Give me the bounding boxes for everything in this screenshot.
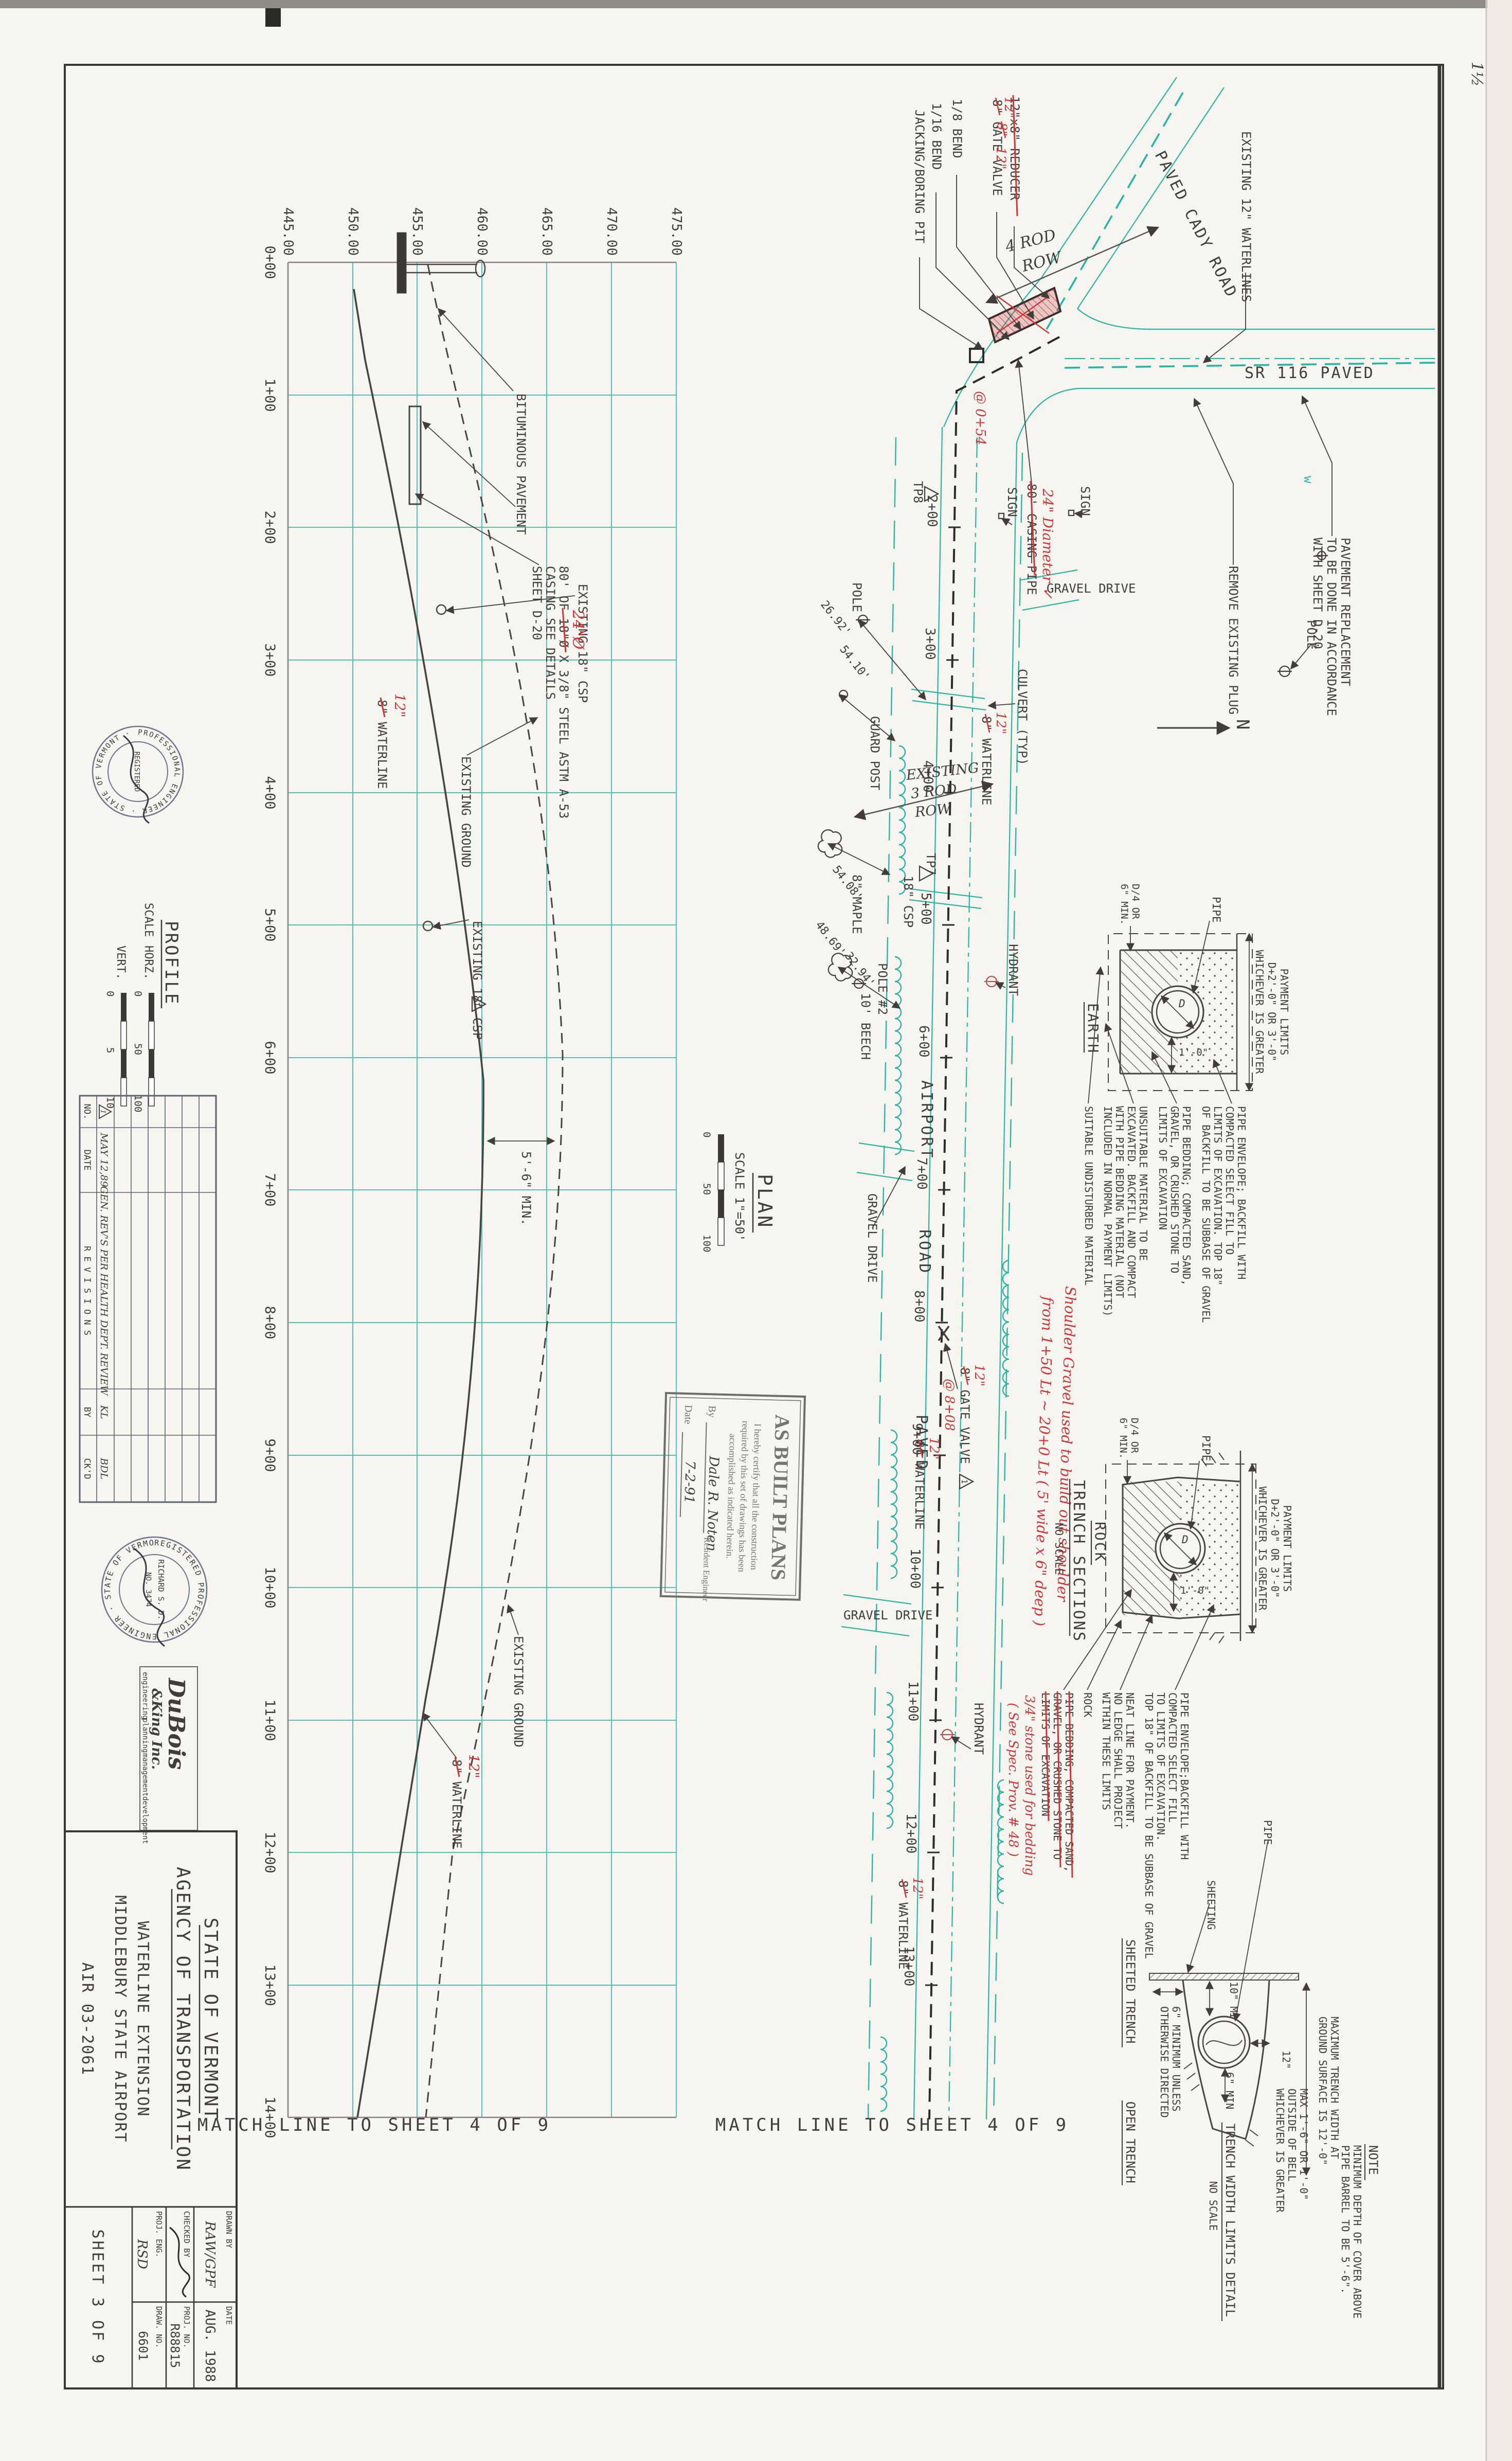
scale-tick: 100 — [132, 1095, 143, 1112]
max-bell-3: WHICHEVER IS GREATER — [1274, 2089, 1286, 2213]
asbuilt-line-1: I hereby certify that all the constructi… — [749, 1423, 763, 1570]
elevation-label: 470.00 — [604, 207, 619, 256]
rock-pipe-label: PIPE — [1200, 1435, 1212, 1461]
rock-d4-1: D/4 OR — [1129, 1418, 1140, 1453]
elevation-label: 445.00 — [280, 207, 296, 256]
gate-valve2-label: 8" GATE VALVE — [958, 1367, 972, 1464]
firm-logo-block: DuBois &King Inc. engineering planning m… — [140, 1667, 197, 1844]
existing-ground-label: EXISTING GROUND — [459, 756, 473, 868]
scale-tick: 0 — [701, 1132, 712, 1137]
earth-env-4: OF BACKFILL TO BE SUBBASE OF GRAVEL — [1200, 1106, 1212, 1323]
revision-number: 1 — [472, 1002, 481, 1006]
firm-service-4: development — [141, 1796, 149, 1844]
min-unless-2: OTHERWISE DIRECTED — [1158, 2006, 1171, 2118]
draw-no-label: DRAW. NO. — [154, 2306, 164, 2348]
min-cover-label: 5'-6" MIN. — [519, 1151, 533, 1226]
plan-title: PLAN — [753, 1174, 776, 1229]
revision-number: 1 — [960, 1479, 969, 1484]
vert-word: VERT. — [114, 946, 127, 979]
rock-dim-1ft: 1'-0" — [1180, 1585, 1210, 1596]
sign-label-b: SIGN — [1078, 486, 1092, 516]
earth-env-3: LIMITS OF EXCAVATION. TOP 18" — [1212, 1106, 1224, 1286]
rock-payment-2: D+2'-0" OR 3'-0" — [1269, 1499, 1281, 1598]
earth-env-1: PIPE ENVELOPE; BACKFILL WITH — [1235, 1106, 1248, 1279]
revision-row-1: 1 MAY 12,89 GEN. REV'S PER HEALTH DEPT. … — [98, 1105, 111, 1479]
rev-header-revisions: R E V I S I O N S — [82, 1246, 92, 1335]
waterline-label-c: 8" WATERLINE — [896, 1880, 910, 1969]
guard-post-label: GUARD POST — [868, 716, 882, 791]
red-gv2-at: @ 8+08 — [942, 1379, 957, 1431]
red-gv-at: @ 0+54 — [973, 391, 988, 445]
scale-tick: 100 — [701, 1235, 712, 1252]
dim-5410: 54.10' — [837, 643, 872, 683]
gravel-drive-label-b: GRAVEL DRIVE — [865, 1193, 879, 1282]
jacking-pit-label: JACKING/BORING PIT — [912, 110, 927, 243]
scale-tick: 5 — [104, 1047, 116, 1053]
profile-title: PROFILE — [161, 921, 182, 1005]
firm-service-1: engineering — [141, 1672, 149, 1720]
rev-row-date: MAY 12,89 — [98, 1132, 110, 1187]
bend-116-label: 1/16 BEND — [929, 103, 944, 170]
rock-d4-2: 6" MIN. — [1118, 1418, 1129, 1459]
rod3-row-2: 3 ROD — [910, 781, 958, 802]
profile-station: 8+00 — [262, 1306, 278, 1339]
title-project-2: MIDDLEBURY STATE AIRPORT — [111, 1895, 129, 2143]
casing-note-line1: 80' OF 18"Ø X 3/8" STEEL ASTM A-53 — [556, 566, 571, 818]
red-12-profile-1: 12" — [391, 693, 407, 718]
existing-csp-label-2: EXISTING 18" CSP — [470, 921, 484, 1040]
hydrant-label-b: HYDRANT — [971, 1703, 986, 1755]
match-line-left: MATCH LINE TO SHEET 4 OF 9 — [197, 2115, 551, 2135]
drawn-by-value: RAW/GPF — [202, 2220, 218, 2288]
sheeting-label: SHEETING — [1205, 1880, 1217, 1930]
earth-payment-2: D+2'-0" OR 3'-0" — [1266, 962, 1278, 1062]
match-line-right: MATCH LINE TO SHEET 4 OF 9 — [715, 2115, 1069, 2135]
earth-section: PAYMENT LIMITS D+2'-0" OR 3'-0" WHICHEVE… — [1083, 884, 1290, 1323]
csp18-label: 18" CSP — [901, 876, 915, 928]
bituminous-pavement-label: BITUMINOUS PAVEMENT — [514, 394, 528, 535]
remove-plug-label: REMOVE EXISTING PLUG — [1226, 566, 1240, 715]
earth-dim-d: D — [1178, 997, 1185, 1010]
profile-station: 0+00 — [262, 245, 278, 279]
asbuilt-date-label: Date — [682, 1405, 694, 1424]
registration-tab — [265, 8, 281, 27]
casing-crossing — [970, 288, 1060, 362]
rev-header-by: BY — [82, 1407, 92, 1417]
horz-word: HORZ. — [142, 946, 155, 979]
earth-unsuit-4: INCLUDED IN NORMAL PAYMENT LIMITS) — [1102, 1106, 1114, 1316]
earth-unsuit-2: EXCAVATED. BACKFILL AND COMPACT — [1125, 1106, 1138, 1298]
trench-width-labels: SHEETED TRENCH OPEN TRENCH SHEETING PIPE… — [1122, 1820, 1380, 2321]
drawing-canvas: 1½ 0+00 1+00 2+00 3+00 4+00 5+00 6+00 7+… — [0, 0, 1512, 2461]
date-label: DATE — [224, 2306, 233, 2325]
rock-env-2: COMPACTED SELECT FILL — [1166, 1692, 1179, 1823]
sr116-label: SR 116 PAVED — [1245, 364, 1375, 382]
cady-road-label: PAVED CADY ROAD — [1151, 148, 1241, 301]
waterline-label-b: 8" WATERLINE — [912, 1440, 927, 1529]
profile-station: 6+00 — [262, 1041, 278, 1074]
profile-station: 13+00 — [262, 1964, 278, 2006]
earth-d4-1: D/4 OR — [1130, 884, 1141, 919]
profile-station: 11+00 — [262, 1699, 278, 1741]
profile-station: 10+00 — [262, 1566, 278, 1608]
red-wl12-c: 12" — [910, 1877, 925, 1899]
rock-env-4: TOP 18" OF BACKFILL TO BE SUBBASE OF GRA… — [1143, 1692, 1155, 1959]
asbuilt-date-value: 7-2-91 — [681, 1460, 697, 1504]
existing-12-waterlines-label: EXISTING 12" WATERLINES — [1239, 131, 1253, 302]
earth-pipe-label: PIPE — [1210, 897, 1222, 923]
max-bell-2: OUTSIDE OF BELL — [1286, 2089, 1298, 2182]
scale-word: SCALE — [142, 903, 155, 937]
plan-red-markup: 8" 12" 12" @ 0+54 24" Diameter ✓ 12" 12"… — [902, 95, 1079, 1899]
pavement-note-2: TO BE DONE IN ACCORDANCE — [1324, 538, 1339, 716]
plan-station: 3+00 — [922, 628, 938, 660]
pencil-margin-note: 1½ — [1468, 62, 1486, 86]
horz-scale-bar: 0 50 100 — [132, 991, 154, 1112]
red-reducer-new: 12" — [994, 147, 1009, 169]
asbuilt-title: AS BUILT PLANS — [767, 1414, 794, 1580]
red-wl12-a: 12" — [994, 712, 1009, 734]
earth-unsuit-3: WITH PIPE BEDDING MATERIAL (NOT — [1113, 1106, 1126, 1298]
trench-sections-scale: NO SCALE — [1053, 1523, 1065, 1575]
firm-service-3: management — [141, 1753, 149, 1796]
earth-payment-1: PAYMENT LIMITS — [1278, 969, 1290, 1056]
title-agency: AGENCY OF TRANSPORTATION — [172, 1867, 193, 2171]
scan-edge-top — [0, 0, 1512, 8]
sheeted-trench-label: SHEETED TRENCH — [1123, 1939, 1138, 2043]
rock-neat-2: NO LEDGE SHALL PROJECT — [1112, 1692, 1124, 1829]
road-name-2: ROAD — [915, 1229, 933, 1275]
pavement-note-1: PAVEMENT REPLACEMENT — [1338, 538, 1353, 686]
title-state: STATE OF VERMONT — [200, 1918, 221, 2121]
w-mark: w — [1301, 476, 1316, 484]
asbuilt-stamp: AS BUILT PLANS I hereby certify that all… — [661, 1393, 805, 1604]
earth-env-2: COMPACTED SELECT FILL TO — [1223, 1106, 1236, 1255]
earth-d4-2: 6" MIN. — [1119, 884, 1130, 925]
rod3-row-3: ROW — [913, 801, 952, 821]
rock-neat-1: NEAT LINE FOR PAYMENT. — [1124, 1692, 1136, 1829]
earth-bed-3: LIMITS OF EXCAVATION — [1157, 1106, 1169, 1230]
rock-red-note-2: ( See Spec. Prov. # 48 ) — [1006, 1703, 1021, 1857]
north-label: N — [1232, 719, 1253, 729]
width-detail-title: TRENCH WIDTH LIMITS DETAIL — [1223, 2124, 1237, 2317]
svg-text:REGISTERED PROFESSIONAL ENGINE: REGISTERED PROFESSIONAL ENGINEER · STATE… — [103, 0, 1512, 1641]
plan-station: 12+00 — [903, 1813, 919, 1853]
rock-callouts: PIPE ENVELOPE;BACKFILL WITH COMPACTED SE… — [1039, 1692, 1191, 1959]
gravel-drive-label-c: GRAVEL DRIVE — [843, 1608, 932, 1622]
profile-station: 7+00 — [262, 1173, 278, 1206]
revisions-table: NO. DATE R E V I S I O N S BY CK'D 1 MAY… — [80, 1096, 216, 1502]
road-name-1: AIRPORT — [917, 1080, 935, 1160]
firm-service-2: planning — [141, 1718, 149, 1753]
max-width-2: GROUND SURFACE IS 12'-0" — [1317, 2017, 1329, 2165]
plan-station: 10+00 — [907, 1548, 923, 1589]
gravel-drive-label-a: GRAVEL DRIVE — [1047, 581, 1136, 596]
profile-station: 12+00 — [262, 1831, 278, 1873]
plan-station: 11+00 — [905, 1681, 921, 1721]
casing-note-line3: SHEET D-20 — [530, 566, 544, 640]
pole-no2-label: POLE #2 — [875, 963, 890, 1015]
title-project-1: WATERLINE EXTENSION — [134, 1921, 152, 2117]
firm-name-1: DuBois — [163, 1677, 189, 1770]
waterline-label-2: 8" WATERLINE — [449, 1759, 464, 1848]
rock-red-note-1: 3/4" stone used for bedding — [1022, 1695, 1037, 1876]
profile-station: 5+00 — [262, 908, 278, 941]
red-shoulder-note-2: from 1+50 Lt ~ 20+0 Lt ( 5' wide x 6" de… — [1031, 1295, 1056, 1627]
plan-station: 8+00 — [911, 1290, 927, 1323]
scale-tick: 0 — [132, 991, 143, 996]
max-bell-1: MAX 1'-6" OR 1'-0" — [1298, 2089, 1310, 2200]
draw-no-value: 6601 — [136, 2331, 150, 2361]
note-title: NOTE — [1366, 2145, 1380, 2175]
proj-no-value: R88815 — [168, 2324, 182, 2368]
rev-row-description: GEN. REV'S PER HEALTH DEPT. REVIEW — [98, 1186, 110, 1396]
asbuilt-line-3: accomplished as indicated herein. — [725, 1434, 738, 1559]
red-wl12-b: 12" — [927, 1437, 942, 1459]
sheet-number: SHEET 3 OF 9 — [88, 2230, 106, 2366]
profile-station: 4+00 — [262, 776, 278, 809]
elevation-label: 450.00 — [345, 207, 361, 256]
profile-title-block: PROFILE SCALE HORZ. 0 50 100 VERT. 0 5 1… — [104, 903, 182, 1112]
elevation-label: 475.00 — [669, 207, 684, 256]
waterline-label: 8" WATERLINE — [375, 700, 389, 789]
profile-station: 9+00 — [262, 1438, 278, 1472]
rock-dim-d: D — [1181, 1533, 1189, 1546]
proj-eng-value: RSD — [134, 2239, 150, 2269]
earth-suitable: SUITABLE UNDISTURBED MATERIAL — [1083, 1106, 1095, 1286]
red-gv-new: 12" — [1002, 97, 1016, 118]
red-casing-dia: 24"Ø — [569, 610, 587, 650]
rock-rock-label: ROCK — [1082, 1692, 1094, 1717]
earth-payment-3: WHICHEVER IS GREATER — [1253, 950, 1266, 1075]
pe-seal-1: PROFESSIONAL ENGINEER · STATE OF VERMONT… — [93, 726, 183, 823]
profile-elevation-labels: 475.00 470.00 465.00 460.00 455.00 450.0… — [280, 207, 684, 256]
rock-payment-1: PAYMENT LIMITS — [1281, 1505, 1293, 1592]
proj-eng-label: PROJ. ENG. — [154, 2211, 164, 2257]
rod3-row-1: EXISTING — [905, 760, 979, 783]
dim12-label: 12" — [1280, 2050, 1292, 2069]
pole-label-b: POLE — [850, 582, 864, 612]
scanned-sheet: 1½ 0+00 1+00 2+00 3+00 4+00 5+00 6+00 7+… — [0, 0, 1512, 2461]
width-pipe-label: PIPE — [1262, 1820, 1274, 1845]
scan-edge-right — [1487, 0, 1512, 2461]
drawn-by-label: DRAWN BY — [224, 2211, 233, 2248]
title-block: STATE OF VERMONT AGENCY OF TRANSPORTATIO… — [65, 1831, 237, 2388]
scale-tick: 0 — [104, 991, 116, 996]
profile-station: 2+00 — [262, 510, 278, 544]
rev-row-ckd: BDL — [98, 1457, 110, 1479]
note-line-1: MINIMUM DEPTH OF COVER ABOVE — [1351, 2145, 1363, 2319]
north-arrow: N — [1157, 719, 1253, 729]
proj-no-label: PROJ. NO. — [182, 2306, 191, 2348]
dim-4869: 48.69' — [813, 919, 848, 959]
checked-by-label: CHECKED BY — [182, 2211, 191, 2257]
elevation-label: 460.00 — [474, 207, 490, 256]
asbuilt-line-2: required by this set of drawings has bee… — [736, 1421, 751, 1573]
rev-header-no: NO. — [82, 1104, 92, 1120]
culvert-label: CULVERT (TYP) — [1015, 669, 1030, 765]
red-12-profile-2: 12" — [465, 1754, 481, 1778]
date-value: AUG. 1988 — [202, 2310, 218, 2382]
red-casing-dia-plan: 24" Diameter ✓ — [1039, 488, 1055, 599]
rev-header-ckd: CK'D — [82, 1458, 92, 1479]
rotated-drawing: 0+00 1+00 2+00 3+00 4+00 5+00 6+00 7+00 … — [65, 0, 1512, 2388]
sign-label-a: SIGN — [1005, 487, 1019, 517]
profile-red-markup: 24"Ø 12" 12" — [381, 608, 587, 1778]
asbuilt-by-label: By — [706, 1405, 718, 1418]
earth-dim-1ft: 1'-0" — [1179, 1047, 1208, 1058]
scale-tick: 50 — [701, 1183, 712, 1195]
scale-tick: 50 — [132, 1043, 143, 1055]
plan-station: 7+00 — [914, 1157, 929, 1190]
rev-header-date: DATE — [82, 1150, 92, 1171]
revision-triangle-plan: 1 — [960, 1474, 973, 1489]
tp7-label: TP7 — [924, 853, 938, 875]
plan-station: 6+00 — [916, 1025, 931, 1058]
profile-station-labels: 0+00 1+00 2+00 3+00 4+00 5+00 6+00 7+00 … — [262, 245, 278, 2138]
rock-payment-3: WHICHEVER IS GREATER — [1256, 1487, 1269, 1611]
bend-18-label: 1/8 BEND — [950, 99, 964, 158]
waterline-label-a: 8" WATERLINE — [979, 716, 994, 805]
profile-station: 1+00 — [262, 378, 278, 412]
title-project-number: AIR 03-2061 — [78, 1963, 96, 2076]
elevation-label: 455.00 — [409, 207, 425, 256]
firm-name-2: &King Inc. — [149, 1688, 164, 1770]
pe-seal-2: REGISTERED PROFESSIONAL ENGINEER · STATE… — [102, 0, 1512, 1646]
revisions-header: NO. DATE R E V I S I O N S BY CK'D — [82, 1104, 92, 1479]
note-line-2: PIPE BARREL TO BE 5'-6". — [1339, 2145, 1352, 2294]
width-detail-scale: NO SCALE — [1207, 2181, 1219, 2231]
existing-ground-label-2: EXISTING GROUND — [511, 1636, 526, 1747]
rev-row-no: 1 — [99, 1110, 106, 1114]
asbuilt-role: Resident Engineer — [701, 1537, 712, 1602]
plan-waterline — [925, 337, 1059, 2119]
max-width-1: MAXIMUM TRENCH WIDTH AT — [1328, 2017, 1341, 2159]
seal2-ring-text: REGISTERED PROFESSIONAL ENGINEER · STATE… — [103, 0, 1512, 1641]
rev-row-by: KL — [98, 1405, 110, 1419]
elevation-label: 465.00 — [539, 207, 554, 256]
earth-unsuit-1: UNSUITABLE MATERIAL TO BE — [1137, 1106, 1149, 1261]
earth-bed-1: PIPE BEDDING; COMPACTED SAND, — [1180, 1106, 1193, 1286]
rock-env-3: TO LIMITS OF EXCAVATION. — [1155, 1692, 1167, 1841]
open-trench-label: OPEN TRENCH — [1123, 2101, 1138, 2183]
vert-scale-bar: 0 5 10 — [104, 991, 127, 1109]
profile-station: 3+00 — [262, 643, 278, 676]
profile-linework — [354, 233, 575, 2117]
rock-title: ROCK — [1092, 1522, 1109, 1562]
plan-scale: SCALE 1"=50' — [732, 1152, 747, 1241]
earth-callouts: PIPE ENVELOPE; BACKFILL WITH COMPACTED S… — [1083, 1106, 1248, 1323]
plan-station: 5+00 — [918, 893, 933, 925]
trench-sections-title: TRENCH SECTIONS — [1070, 1480, 1088, 1643]
min-unless-1: 6" MINIMUM UNLESS — [1170, 2006, 1182, 2112]
rock-neat-3: WITHIN THESE LIMITS — [1100, 1692, 1112, 1810]
beech-label: 10' BEECH — [858, 993, 873, 1060]
casing-note-line2: CASING SEE DETAILS — [543, 566, 557, 700]
tp8-label: TP8 — [911, 481, 925, 503]
plan-title-block: PLAN SCALE 1"=50' 0 50 100 — [701, 1132, 776, 1252]
red-gv2-new: 12" — [972, 1364, 987, 1386]
hydrant-label-a: HYDRANT — [1006, 944, 1020, 996]
rock-env-1: PIPE ENVELOPE;BACKFILL WITH — [1178, 1692, 1191, 1860]
dim-2692: 26.92' — [818, 598, 853, 638]
pole-label: POLE — [1304, 620, 1319, 650]
earth-bed-2: GRAVEL, OR CRUSHED STONE TO — [1168, 1106, 1181, 1273]
